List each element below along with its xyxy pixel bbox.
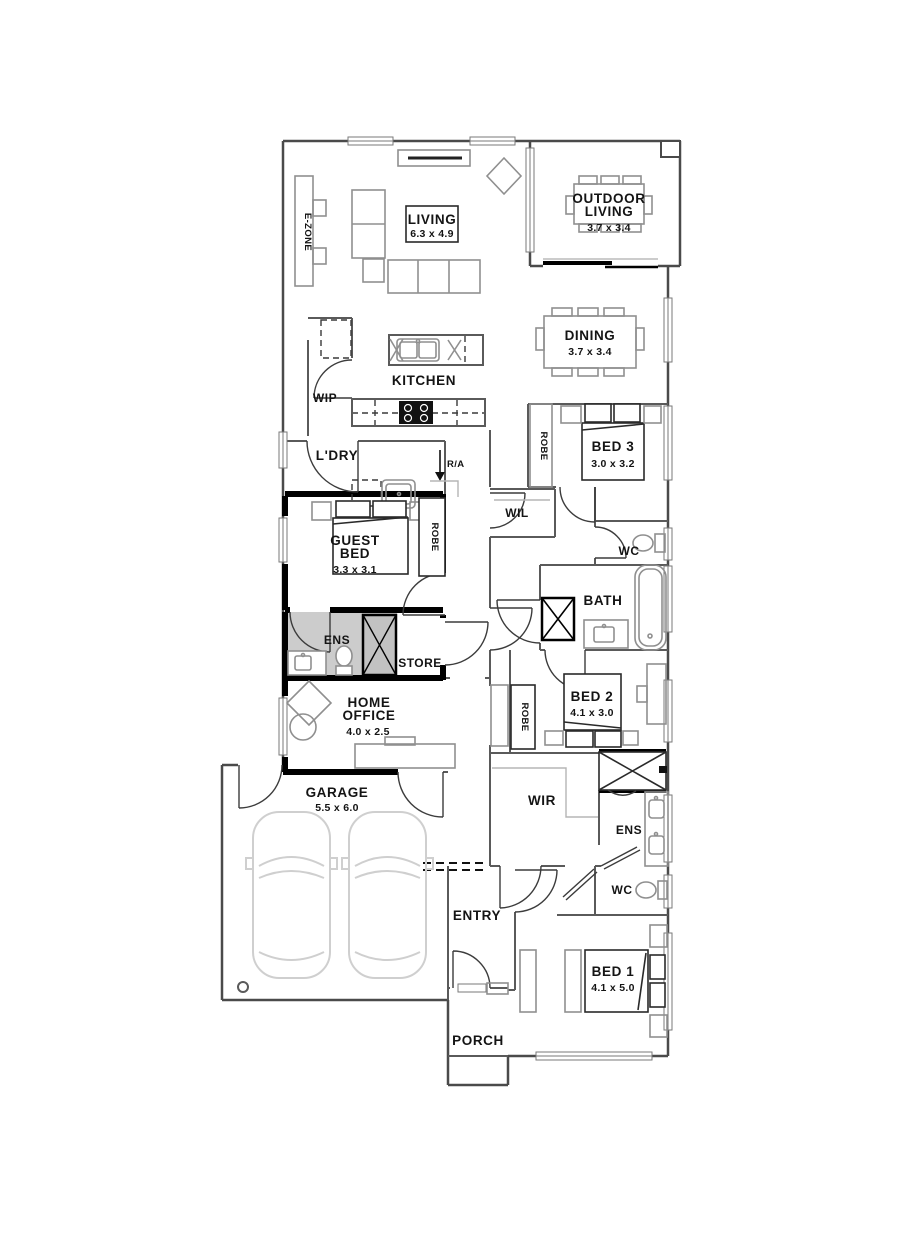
master-shower-icon [599, 752, 667, 795]
guest-bed-dim: 3.3 x 3.1 [333, 564, 377, 576]
bed2-dim: 4.1 x 3.0 [570, 707, 614, 719]
garage-marker [238, 982, 248, 992]
return-air-label: R/A [447, 459, 465, 470]
wc-master-label: WC [612, 883, 633, 897]
bed3-label: BED 3 [592, 439, 635, 454]
ens-toilet-icon [336, 646, 352, 666]
guest-robe-label: ROBE [429, 522, 440, 551]
kitchen-island-icon [389, 335, 483, 365]
home-office-label-2: OFFICE [342, 708, 395, 723]
wc-master-toilet-icon [636, 881, 667, 899]
store-label: STORE [398, 656, 442, 670]
bed1-dim: 4.1 x 5.0 [591, 982, 635, 994]
kitchen-label: KITCHEN [392, 373, 456, 388]
bed2-desk-icon [637, 664, 666, 724]
car-icon [342, 812, 433, 978]
ens-vanity-icon [288, 651, 326, 675]
dining-dim: 3.7 x 3.4 [568, 346, 612, 358]
wip-label: WIP [313, 391, 337, 405]
bed2-label: BED 2 [571, 689, 614, 704]
outdoor-living-label-2: LIVING [585, 204, 634, 219]
floor-plan-drawing: E-ZONE LIVING 6.3 x 4.9 OUTDOOR LIVING 3… [0, 0, 901, 1245]
bed1-icon [520, 925, 667, 1037]
wir-label: WIR [528, 793, 556, 808]
bed1-label: BED 1 [592, 964, 635, 979]
ens-guest-label: ENS [324, 633, 350, 647]
living-label: LIVING [408, 212, 457, 227]
bath-vanity-icon [584, 620, 628, 648]
entry-label: ENTRY [453, 908, 501, 923]
garage-label: GARAGE [306, 785, 369, 800]
porch-label: PORCH [452, 1033, 504, 1048]
ldry-label: L'DRY [316, 448, 358, 463]
home-office-dim: 4.0 x 2.5 [346, 726, 390, 738]
bed3-robe-label: ROBE [538, 431, 549, 460]
cooktop-icon [399, 401, 433, 424]
wc-main-label: WC [619, 544, 640, 558]
garage-dim: 5.5 x 6.0 [315, 802, 359, 814]
living-dim: 6.3 x 4.9 [410, 228, 454, 240]
hall-cupboard-icon [491, 685, 508, 746]
outdoor-living-dim: 3.7 x 3.4 [587, 222, 631, 234]
ens-master-label: ENS [616, 823, 642, 837]
tv-unit-icon [398, 150, 470, 166]
guest-bed-label-2: BED [340, 546, 370, 561]
wil-label: WIL [505, 506, 529, 520]
bed3-dim: 3.0 x 3.2 [591, 458, 635, 470]
bed2-robe-label: ROBE [519, 702, 530, 731]
armchair-icon [487, 158, 521, 194]
dining-label: DINING [565, 328, 616, 343]
floor-plan-canvas: E-ZONE LIVING 6.3 x 4.9 OUTDOOR LIVING 3… [0, 0, 901, 1245]
e-zone-label: E-ZONE [302, 213, 313, 251]
bath-label: BATH [584, 593, 623, 608]
car-icon [246, 812, 337, 978]
